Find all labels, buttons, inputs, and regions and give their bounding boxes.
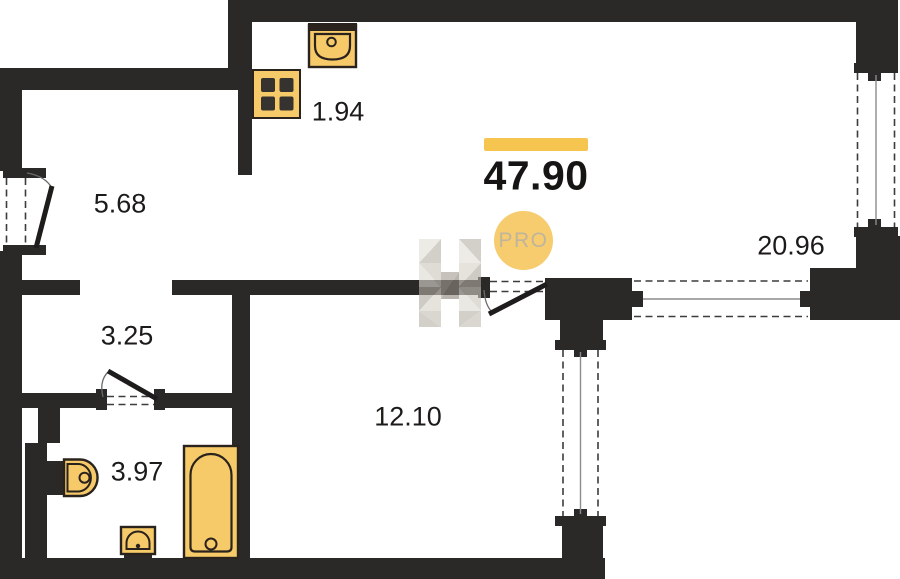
bath-sink-icon bbox=[121, 527, 155, 560]
room-area-entry-hall: 5.68 bbox=[94, 189, 147, 220]
bathtub-body bbox=[184, 446, 238, 558]
kitchen-sink-icon bbox=[308, 23, 357, 67]
wall-segment bbox=[0, 558, 605, 579]
window-nub bbox=[868, 219, 881, 227]
room-area-corridor: 3.25 bbox=[101, 321, 154, 352]
sink-mount bbox=[308, 23, 357, 31]
window-nub bbox=[800, 291, 812, 307]
door-jamb bbox=[3, 245, 46, 255]
pro-badge: PRO bbox=[494, 211, 553, 270]
stove-burner bbox=[280, 78, 294, 92]
window-cap bbox=[854, 63, 898, 73]
bedroom-door bbox=[478, 277, 547, 314]
bathroom-door bbox=[96, 371, 165, 410]
window-cap bbox=[555, 340, 606, 350]
wall-segment bbox=[0, 251, 22, 558]
toilet-icon bbox=[47, 460, 98, 497]
stove-burner bbox=[280, 97, 294, 111]
wall-segment bbox=[25, 443, 47, 558]
door-opening-dash bbox=[7, 178, 26, 245]
total-area-accent-bar bbox=[484, 138, 588, 151]
door-leaf bbox=[36, 186, 52, 248]
door-leaf bbox=[489, 284, 547, 314]
stove-icon bbox=[253, 70, 300, 118]
door-opening-dash bbox=[107, 397, 154, 405]
entry-door bbox=[3, 168, 52, 255]
bathtub-icon bbox=[184, 446, 238, 558]
stove-burner bbox=[261, 78, 275, 92]
window-nub bbox=[868, 73, 881, 81]
wall-segment bbox=[228, 22, 252, 90]
window-living bbox=[632, 281, 812, 317]
wall-segment bbox=[163, 393, 250, 408]
window-cap bbox=[555, 516, 606, 526]
window-cap bbox=[854, 227, 898, 237]
stove-body bbox=[253, 70, 300, 118]
brand-watermark-icon bbox=[419, 239, 481, 327]
window-bedroom bbox=[555, 340, 606, 526]
window-nub bbox=[632, 291, 643, 307]
pro-badge-label: PRO bbox=[498, 229, 548, 253]
wall-segment bbox=[562, 526, 603, 558]
room-area-bedroom: 12.10 bbox=[374, 402, 442, 433]
wall-segment bbox=[22, 280, 80, 295]
stove-burner bbox=[261, 97, 275, 111]
room-area-living-room: 20.96 bbox=[757, 231, 825, 262]
total-area-value: 47.90 bbox=[483, 153, 588, 200]
door-leaf bbox=[108, 371, 157, 399]
wall-segment bbox=[22, 393, 98, 408]
wall-segment bbox=[0, 68, 22, 171]
wall-segment bbox=[545, 278, 632, 320]
wall-segment bbox=[856, 22, 898, 67]
wall-segment bbox=[0, 68, 240, 90]
toilet-tank bbox=[47, 461, 64, 495]
room-area-kitchen-niche: 1.94 bbox=[312, 97, 365, 128]
wall-segment bbox=[38, 408, 60, 443]
bath-sink-drain bbox=[136, 544, 140, 548]
floorplan: 5.68 1.94 3.25 3.97 12.10 20.96 47.90 PR… bbox=[0, 0, 900, 579]
room-area-bathroom: 3.97 bbox=[111, 457, 164, 488]
floorplan-drawing bbox=[0, 0, 900, 579]
window-right bbox=[854, 63, 898, 237]
wall-segment bbox=[810, 268, 900, 320]
wall-segment bbox=[228, 0, 898, 22]
wall-segment bbox=[238, 90, 252, 175]
